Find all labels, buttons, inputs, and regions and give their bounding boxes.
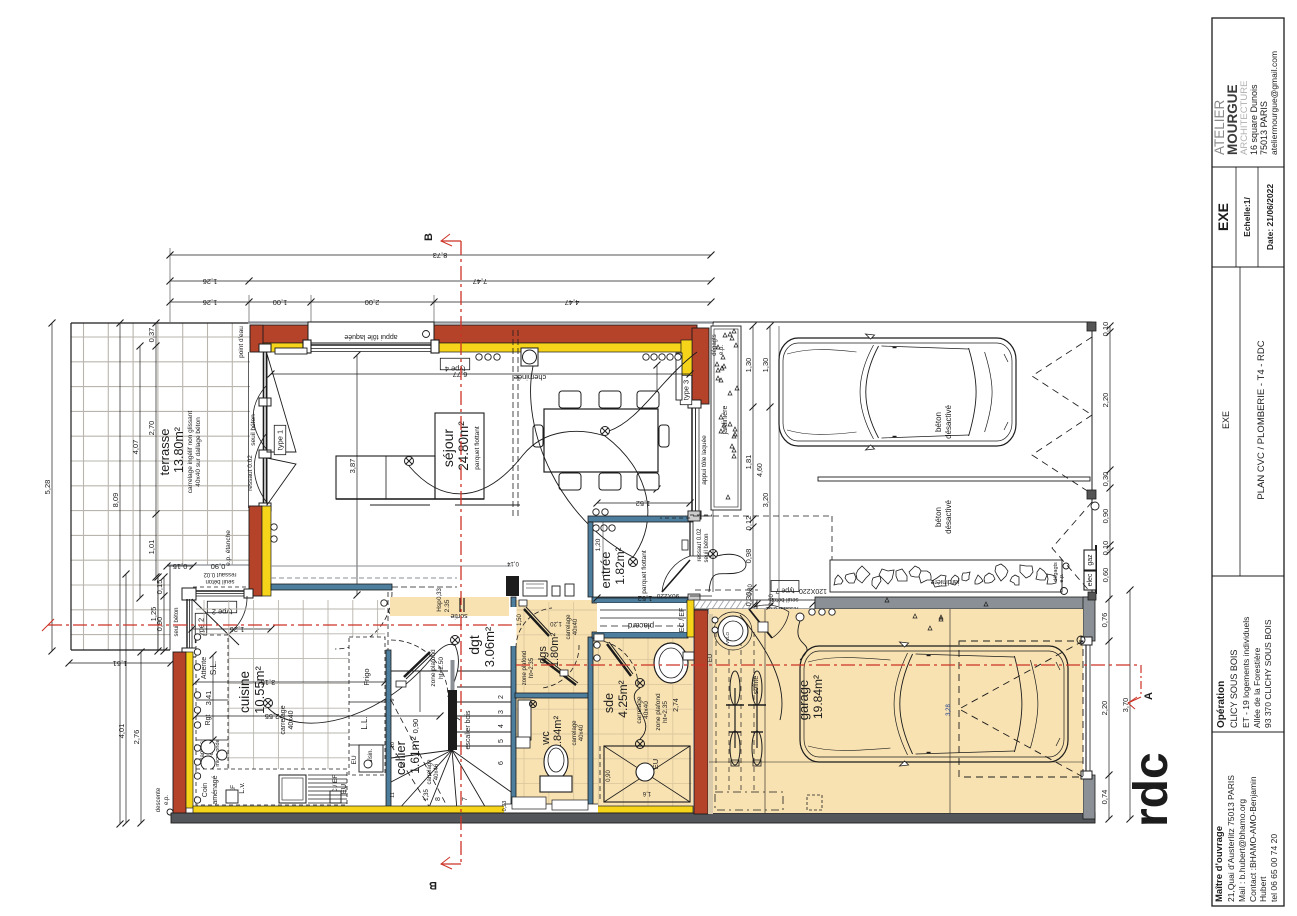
- svg-text:garage: garage: [796, 680, 811, 720]
- svg-text:0,23: 0,23: [502, 801, 508, 812]
- svg-text:sortie: sortie: [450, 612, 467, 619]
- svg-text:90X220: 90X220: [656, 592, 679, 599]
- svg-text:0,10: 0,10: [1101, 322, 1110, 337]
- svg-text:3: 3: [498, 710, 505, 714]
- svg-text:zone plafond: zone plafond: [655, 693, 662, 731]
- svg-text:4,07: 4,07: [131, 440, 140, 455]
- svg-text:appui tôle laquée: appui tôle laquée: [701, 435, 708, 485]
- svg-text:0,60: 0,60: [769, 594, 775, 606]
- svg-text:93 370 CLICHY SOUS BOIS: 93 370 CLICHY SOUS BOIS: [1263, 619, 1273, 728]
- svg-text:0,15: 0,15: [155, 580, 164, 595]
- svg-text:4: 4: [498, 724, 505, 728]
- svg-text:2,55: 2,55: [265, 712, 280, 721]
- svg-text:75013 PARIS: 75013 PARIS: [1259, 101, 1269, 155]
- svg-text:béton: béton: [934, 412, 943, 432]
- svg-text:1,35: 1,35: [424, 789, 430, 801]
- svg-text:Maître d’ouvrage: Maître d’ouvrage: [1214, 826, 1225, 902]
- svg-text:PLAN CVC / PLOMBERIE - T4 - R: PLAN CVC / PLOMBERIE - T4 - RDC: [1256, 340, 1267, 499]
- svg-text:40x40 sur dallage béton: 40x40 sur dallage béton: [195, 417, 202, 487]
- svg-text:4,01: 4,01: [117, 724, 126, 739]
- svg-text:40x40: 40x40: [573, 618, 579, 635]
- svg-text:sde: sde: [602, 693, 616, 713]
- svg-text:EU: EU: [351, 755, 358, 764]
- svg-text:1,25: 1,25: [149, 607, 158, 622]
- svg-text:EC / EF: EC / EF: [679, 608, 686, 633]
- svg-text:carrelage ingélif non glissant: carrelage ingélif non glissant: [187, 411, 194, 494]
- svg-text:jardinière: jardinière: [930, 578, 960, 585]
- svg-text:désactivé: désactivé: [944, 500, 953, 534]
- svg-text:EU: EU: [708, 654, 714, 662]
- svg-text:carrelage: carrelage: [427, 759, 433, 785]
- svg-text:16 square Dunois: 16 square Dunois: [1249, 84, 1259, 155]
- svg-text:10: 10: [390, 742, 396, 748]
- svg-text:appui tôle laquée: appui tôle laquée: [344, 333, 397, 340]
- svg-text:ressaut 0.02: ressaut 0.02: [203, 571, 237, 577]
- svg-text:e.p.: e.p.: [719, 345, 725, 355]
- svg-text:seuil béton: seuil béton: [174, 607, 180, 636]
- svg-text:5: 5: [498, 739, 505, 743]
- svg-text:placard: placard: [628, 621, 654, 630]
- svg-text:type 3: type 3: [682, 380, 691, 400]
- svg-text:0,10: 0,10: [1101, 541, 1110, 556]
- svg-text:parquet flottant: parquet flottant: [641, 550, 648, 594]
- svg-text:escalier bois: escalier bois: [465, 710, 472, 749]
- svg-text:0,98: 0,98: [744, 549, 753, 564]
- svg-text:3,15: 3,15: [261, 678, 276, 687]
- svg-text:0,76: 0,76: [1100, 613, 1109, 628]
- svg-text:ressaut 0.02: ressaut 0.02: [697, 528, 703, 562]
- svg-text:EU: EU: [651, 759, 660, 769]
- svg-text:2,70: 2,70: [147, 421, 156, 436]
- svg-text:0,30: 0,30: [744, 592, 753, 607]
- svg-text:ht=2.35: ht=2.35: [662, 701, 669, 723]
- svg-text:MOURGUE: MOURGUE: [1225, 85, 1240, 156]
- svg-text:0,15: 0,15: [173, 562, 188, 571]
- svg-text:désactivé: désactivé: [944, 405, 953, 439]
- svg-text:parquet flottant: parquet flottant: [474, 426, 481, 470]
- svg-text:jardinière: jardinière: [722, 405, 729, 435]
- svg-text:2,74: 2,74: [673, 698, 680, 712]
- svg-text:40x40: 40x40: [643, 701, 650, 719]
- svg-text:1.82m²: 1.82m²: [613, 547, 627, 584]
- svg-text:Frigo: Frigo: [362, 668, 371, 685]
- svg-text:7,47: 7,47: [473, 277, 488, 286]
- svg-text:0,37: 0,37: [147, 328, 156, 343]
- svg-text:ateliermourgue@gmail.com: ateliermourgue@gmail.com: [1269, 51, 1279, 155]
- svg-text:2,20: 2,20: [1101, 393, 1110, 408]
- svg-text:point d’eau: point d’eau: [238, 326, 245, 358]
- svg-text:e.p.: e.p.: [164, 795, 170, 805]
- svg-text:0,74: 0,74: [1100, 790, 1109, 805]
- svg-text:0,90: 0,90: [411, 719, 420, 734]
- svg-text:7: 7: [462, 797, 469, 801]
- svg-text:1,20: 1,20: [595, 538, 602, 551]
- svg-text:Allée de la Forestière: Allée de la Forestière: [1252, 647, 1262, 728]
- svg-text:dgt: dgt: [466, 635, 482, 655]
- svg-text:2: 2: [498, 695, 505, 699]
- svg-text:aménagé: aménagé: [212, 775, 219, 804]
- svg-text:gaz: gaz: [1087, 554, 1094, 566]
- svg-text:béton: béton: [934, 507, 943, 527]
- svg-text:1,26: 1,26: [203, 298, 218, 307]
- svg-text:2,76: 2,76: [132, 730, 141, 745]
- svg-text:Opération: Opération: [1216, 681, 1227, 728]
- svg-text:0,60: 0,60: [1101, 568, 1110, 583]
- svg-text:1,6: 1,6: [642, 790, 651, 796]
- svg-text:carrelage: carrelage: [280, 705, 287, 734]
- svg-text:1,00: 1,00: [273, 298, 288, 307]
- svg-text:seuil béton: seuil béton: [704, 533, 710, 562]
- svg-text:19.84m²: 19.84m²: [811, 675, 825, 719]
- svg-text:e.p. étanche: e.p. étanche: [225, 530, 232, 566]
- svg-text:3,20: 3,20: [761, 493, 770, 508]
- svg-text:3,41: 3,41: [204, 691, 213, 706]
- svg-text:120X220: 120X220: [799, 587, 827, 594]
- svg-text:40x46: 40x46: [434, 763, 440, 780]
- svg-text:type 7: type 7: [775, 586, 794, 593]
- svg-text:CLICY SOUS BOIS: CLICY SOUS BOIS: [1229, 650, 1239, 728]
- svg-text:Coin: Coin: [202, 783, 209, 798]
- svg-text:0,30: 0,30: [1101, 472, 1110, 487]
- svg-text:tel 06 65 00 74 20: tel 06 65 00 74 20: [1269, 834, 1279, 902]
- svg-text:13.80m²: 13.80m²: [172, 427, 186, 473]
- svg-text:3,28: 3,28: [946, 704, 952, 716]
- svg-text:6,77: 6,77: [453, 370, 468, 379]
- svg-text:5,28: 5,28: [43, 480, 52, 495]
- svg-text:carrelage: carrelage: [572, 720, 578, 746]
- svg-text:carrelage: carrelage: [566, 614, 572, 640]
- svg-text:rdc: rdc: [1125, 752, 1178, 827]
- svg-text:Attente: Attente: [201, 657, 208, 679]
- svg-text:1,26: 1,26: [230, 625, 245, 634]
- svg-text:40x40: 40x40: [579, 724, 585, 741]
- svg-text:21,Quai d’Austerlitz 75013 PAR: 21,Quai d’Austerlitz 75013 PARIS: [1226, 775, 1236, 902]
- svg-text:1,50: 1,50: [517, 614, 523, 626]
- svg-text:8,09: 8,09: [111, 493, 120, 508]
- svg-text:Echelle:1/: Echelle:1/: [1242, 197, 1252, 237]
- svg-text:0,90: 0,90: [1101, 509, 1110, 524]
- svg-text:wc: wc: [540, 731, 552, 746]
- svg-text:1,20: 1,20: [550, 620, 562, 626]
- svg-text:4,60: 4,60: [757, 463, 764, 477]
- svg-text:EXE: EXE: [1215, 203, 1231, 231]
- svg-text:Mail : b.hubert@bhamo.org: Mail : b.hubert@bhamo.org: [1237, 799, 1247, 902]
- svg-text:S.L.: S.L.: [209, 661, 218, 675]
- svg-text:1,30: 1,30: [744, 358, 753, 373]
- svg-text:type 1: type 1: [276, 430, 285, 450]
- svg-text:0,12: 0,12: [744, 516, 753, 531]
- svg-text:ET - 19 logements individuels: ET - 19 logements individuels: [1241, 617, 1251, 728]
- svg-text:0,33: 0,33: [437, 588, 443, 600]
- svg-text:8: 8: [435, 797, 442, 801]
- svg-text:B: B: [429, 879, 437, 891]
- svg-text:entrée: entrée: [598, 552, 613, 589]
- svg-text:0,90: 0,90: [211, 562, 226, 571]
- svg-text:zone plafond: zone plafond: [522, 651, 528, 685]
- svg-text:A: A: [1143, 692, 1155, 700]
- svg-text:ht=2.35: ht=2.35: [529, 657, 535, 678]
- svg-text:1,26: 1,26: [203, 277, 218, 286]
- svg-text:24.80m²: 24.80m²: [456, 421, 471, 471]
- svg-text:1,81: 1,81: [744, 455, 753, 470]
- svg-text:Contact :BHAMO-AMO-Benjamin: Contact :BHAMO-AMO-Benjamin: [1248, 776, 1258, 902]
- svg-text:seuil béton: seuil béton: [205, 578, 234, 584]
- svg-text:11: 11: [390, 792, 396, 798]
- svg-text:3.06m²: 3.06m²: [482, 626, 497, 667]
- svg-text:L.L.: L.L.: [360, 716, 369, 729]
- svg-text:Date: 21/06/2022: Date: 21/06/2022: [1265, 184, 1275, 250]
- svg-text:seuil béton: seuil béton: [250, 414, 257, 446]
- svg-text:1,30: 1,30: [761, 358, 770, 373]
- svg-text:1,52: 1,52: [636, 499, 651, 508]
- svg-text:séjour: séjour: [440, 429, 456, 467]
- svg-text:3,70: 3,70: [1121, 698, 1130, 713]
- svg-text:dégagts: dégagts: [712, 334, 718, 355]
- svg-text:0,14: 0,14: [507, 560, 519, 566]
- svg-text:3,87: 3,87: [348, 459, 357, 474]
- svg-text:4,47: 4,47: [565, 298, 580, 307]
- svg-text:1,01: 1,01: [147, 540, 156, 555]
- svg-text:4.25m²: 4.25m²: [616, 680, 630, 717]
- svg-text:descente: descente: [156, 787, 162, 812]
- svg-text:9: 9: [390, 698, 396, 701]
- svg-text:6: 6: [498, 761, 505, 765]
- svg-text:8,73: 8,73: [433, 251, 448, 260]
- svg-text:EXE: EXE: [1221, 411, 1231, 429]
- svg-text:Hubert: Hubert: [1258, 876, 1268, 902]
- svg-text:1,52: 1,52: [638, 594, 653, 603]
- svg-text:1,61: 1,61: [113, 659, 128, 668]
- svg-text:terrasse: terrasse: [157, 429, 172, 476]
- svg-text:2.35: 2.35: [444, 599, 451, 612]
- svg-text:VELO: VELO: [725, 632, 730, 645]
- svg-text:ressaut 0.02: ressaut 0.02: [247, 455, 254, 491]
- svg-text:2,20: 2,20: [1100, 701, 1109, 716]
- svg-text:2,00: 2,00: [365, 298, 380, 307]
- svg-text:e.p.: e.p.: [1059, 573, 1065, 583]
- svg-text:Hsp: Hsp: [436, 600, 443, 612]
- svg-text:0,90: 0,90: [606, 770, 612, 782]
- svg-text:cuisine: cuisine: [237, 671, 252, 713]
- svg-text:elec: elec: [1087, 573, 1094, 586]
- svg-text:B: B: [423, 233, 435, 241]
